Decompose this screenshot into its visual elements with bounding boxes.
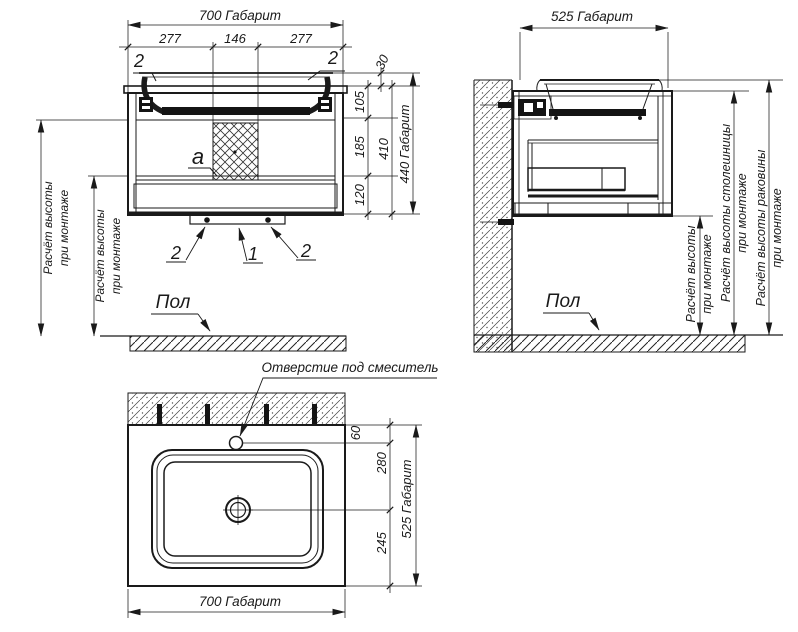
front-dim-105-label: 105 — [352, 90, 367, 112]
plan-dim-total-width: 700 Габарит — [128, 589, 345, 618]
front-dim-700-label: 700 Габарит — [199, 8, 281, 23]
side-mount-bracket — [514, 96, 551, 119]
front-dim-277-right-label: 277 — [289, 31, 312, 46]
front-callout-bottom-center: 1 — [239, 228, 263, 264]
front-note2-line1: Расчёт высоты — [93, 209, 107, 302]
front-plinth-fastener-right — [265, 217, 271, 223]
front-countertop — [124, 86, 347, 93]
front-dim-185-label: 185 — [352, 135, 367, 157]
side-note-sink-line1: Расчёт высоты раковины — [754, 150, 768, 307]
front-dim-146-label: 146 — [224, 31, 246, 46]
plan-dim-700-label: 700 Габарит — [199, 594, 281, 609]
front-label-a-text: a — [192, 144, 204, 169]
plan-dim-total-depth: 525 Габарит — [399, 425, 416, 586]
side-wall — [474, 80, 512, 352]
side-floor-label: Пол — [546, 291, 581, 312]
front-floor-label: Пол — [156, 292, 191, 313]
plan-dim-245-label: 245 — [374, 531, 389, 554]
front-slide-bracket-right — [318, 97, 332, 112]
plan-view: Отверстие под смеситель 60 280 245 52 — [128, 360, 439, 618]
side-dim-525-label: 525 Габарит — [551, 9, 633, 24]
side-basin — [537, 80, 662, 120]
front-note1-line2: при монтаже — [57, 190, 71, 267]
front-dim-410-label: 410 — [376, 137, 391, 159]
front-callout-bottom-right: 2 — [271, 227, 316, 261]
front-callout-top-left: 2 — [133, 51, 156, 81]
side-floor: Пол — [474, 291, 783, 352]
side-wall-hatch — [474, 80, 512, 352]
plan-dim-525-label: 525 Габарит — [399, 459, 414, 538]
front-callout-bottom-center-label: 1 — [248, 244, 258, 264]
side-view: 525 Габарит — [474, 9, 784, 352]
plan-drain — [223, 495, 389, 525]
technical-drawing-page: 700 Габарит 277 146 277 2 2 — [0, 0, 798, 632]
technical-drawing-svg: 700 Габарит 277 146 277 2 2 — [0, 0, 798, 632]
front-note1-line1: Расчёт высоты — [41, 181, 55, 274]
side-cabinet-bottom — [513, 203, 672, 215]
front-floor: Пол — [100, 292, 346, 351]
plan-dim-280-label: 280 — [374, 451, 389, 474]
plan-dim-60-label: 60 — [348, 425, 363, 440]
plan-faucet-note: Отверстие под смеситель — [261, 360, 438, 375]
front-dim-440-label: 440 Габарит — [397, 104, 412, 183]
front-callout-bottom-left: 2 — [166, 227, 205, 263]
front-view: 700 Габарит 277 146 277 2 2 — [36, 8, 420, 351]
front-floor-hatch — [130, 336, 346, 351]
side-dim-cabinet-height: Расчёт высоты при монтаже — [672, 216, 714, 335]
front-dim-heights: 30 105 185 120 410 440 Габарит — [333, 52, 420, 220]
front-callout-top-right: 2 — [308, 48, 345, 80]
front-callout-bottom-left-label: 2 — [170, 243, 181, 263]
front-callout-top-right-label: 2 — [327, 48, 338, 68]
front-dim-total-width: 700 Габарит — [128, 8, 343, 93]
front-basin-underside — [162, 107, 310, 115]
plan-basin — [152, 450, 323, 568]
front-callout-top-left-label: 2 — [133, 51, 144, 71]
side-dim-total-depth: 525 Габарит — [520, 9, 668, 88]
front-dim-mount-height-2: Расчёт высоты при монтаже — [88, 176, 128, 336]
front-drawer-front — [134, 184, 337, 208]
front-cabinet: a — [124, 73, 347, 224]
side-note-cabinet-line1: Расчёт высоты — [684, 226, 698, 323]
front-note2-line2: при монтаже — [109, 218, 123, 295]
plan-wall — [128, 393, 345, 425]
side-floor-hatch — [474, 335, 745, 352]
front-dim-120-label: 120 — [352, 183, 367, 205]
front-callout-bottom-right-label: 2 — [300, 241, 311, 261]
side-note-sink-line2: при монтаже — [770, 188, 784, 267]
front-dim-277-left-label: 277 — [158, 31, 181, 46]
front-slide-bracket-left — [139, 97, 153, 112]
side-note-countertop-line2: при монтаже — [735, 173, 749, 252]
side-note-cabinet-line2: при монтаже — [700, 234, 714, 313]
front-plinth-fastener-left — [204, 217, 210, 223]
front-dim-30-label: 30 — [372, 52, 392, 72]
side-note-countertop-line1: Расчёт высоты столешницы — [719, 124, 733, 302]
